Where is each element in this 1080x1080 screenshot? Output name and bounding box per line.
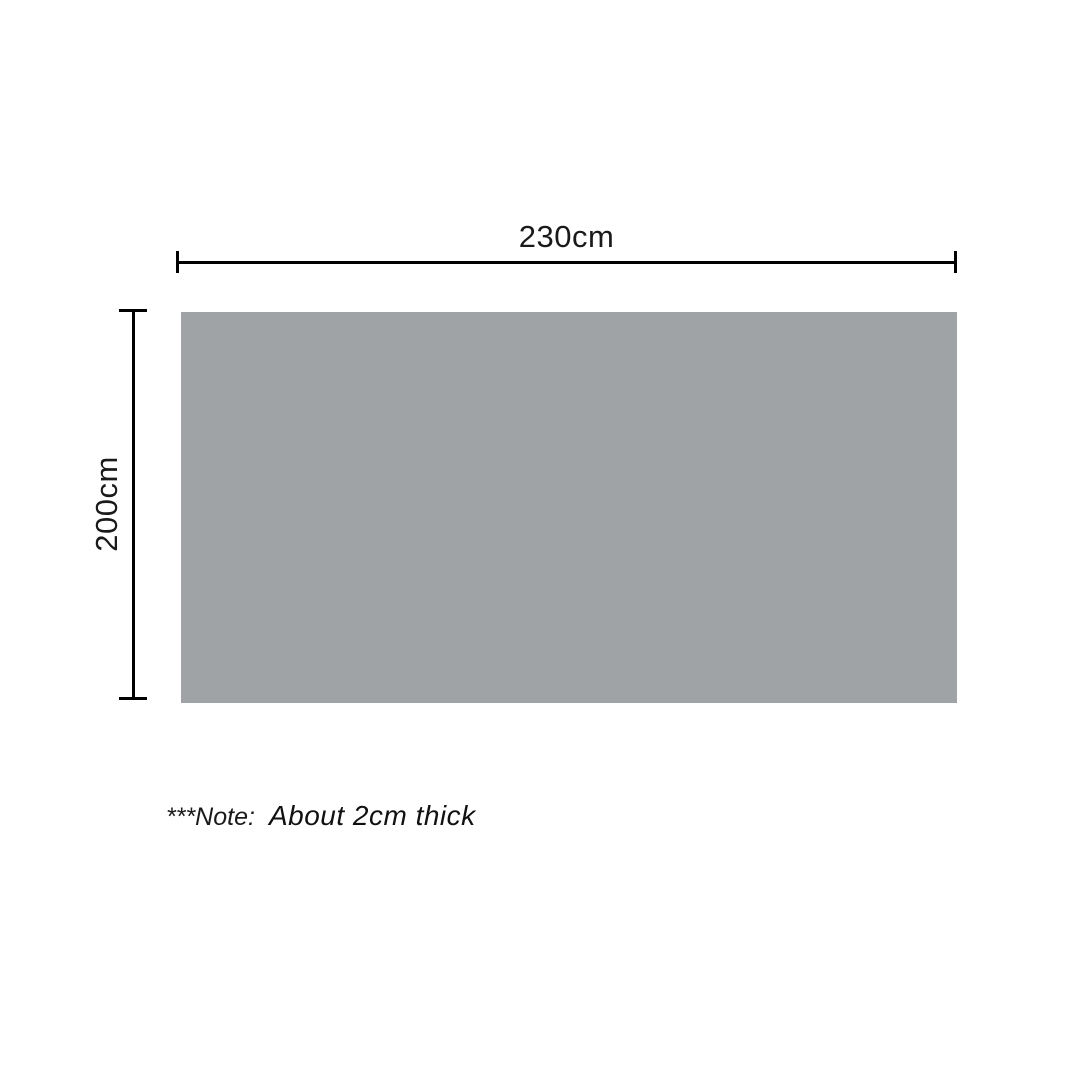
thickness-note-prefix: ***Note:: [166, 803, 255, 832]
thickness-note: ***Note: About 2cm thick: [166, 800, 476, 832]
width-dimension-label: 230cm: [176, 219, 957, 255]
thickness-note-text: About 2cm thick: [269, 800, 476, 832]
height-dimension-label: 200cm: [89, 456, 125, 552]
height-dimension-bottom-tick: [119, 697, 147, 700]
product-rectangle: [181, 312, 957, 703]
dimension-diagram: 230cm 200cm ***Note: About 2cm thick: [0, 0, 1080, 1080]
width-dimension-left-tick: [176, 251, 179, 273]
width-dimension-right-tick: [954, 251, 957, 273]
height-dimension-top-tick: [119, 309, 147, 312]
height-dimension-line: [132, 309, 135, 700]
width-dimension-line: [176, 261, 957, 264]
